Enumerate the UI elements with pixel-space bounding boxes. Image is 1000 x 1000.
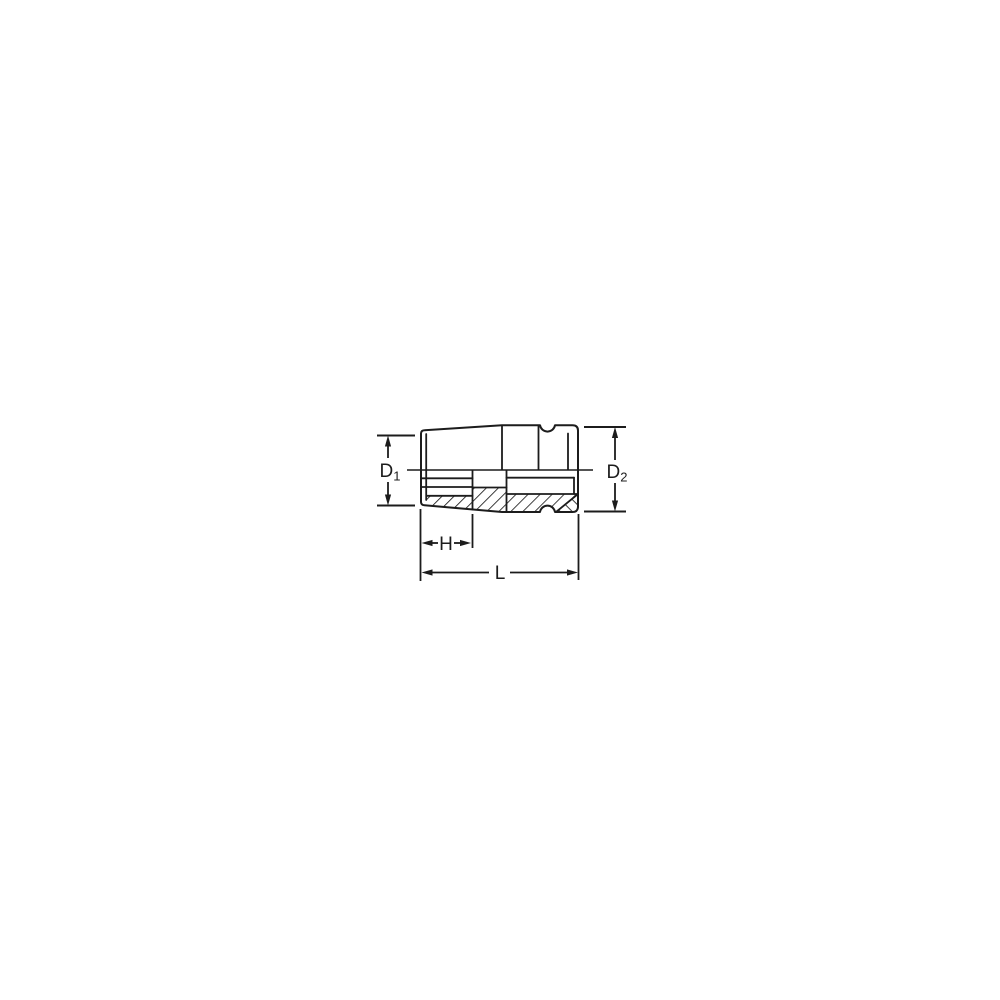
arrow-up-icon	[612, 427, 618, 438]
arrow-right-icon	[460, 540, 471, 546]
arrow-down-icon	[612, 501, 618, 512]
dim-h: H	[421, 509, 473, 581]
arrow-right-icon	[567, 569, 578, 575]
dim-label-d1: D1	[380, 461, 401, 484]
dim-label-h: H	[439, 534, 453, 555]
hatch-middle-region	[473, 488, 507, 513]
dim-label-d2: D2	[607, 462, 628, 485]
socket-body	[407, 425, 593, 512]
socket-dimension-diagram: D1 D2 H L	[0, 0, 1000, 1000]
canvas: D1 D2 H L	[0, 0, 1000, 1000]
arrow-left-icon	[422, 540, 433, 546]
arrow-up-icon	[385, 436, 391, 447]
arrow-down-icon	[385, 495, 391, 506]
dim-label-l: L	[495, 563, 506, 584]
arrow-left-icon	[422, 569, 433, 575]
dim-d2: D2	[584, 427, 627, 512]
